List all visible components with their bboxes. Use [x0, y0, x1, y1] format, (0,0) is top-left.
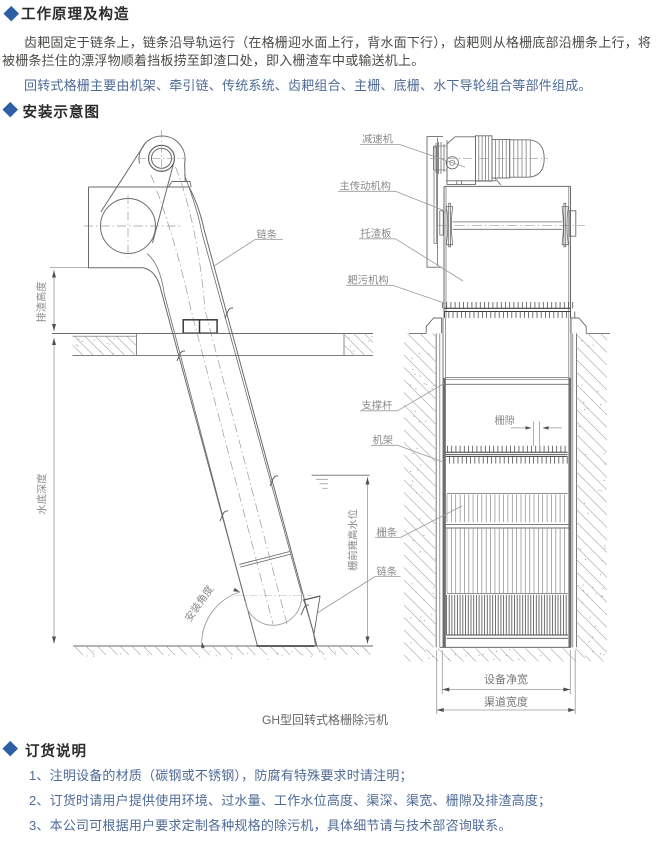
- svg-text:支撑杆: 支撑杆: [362, 399, 393, 412]
- svg-text:渠道宽度: 渠道宽度: [484, 695, 528, 709]
- svg-text:安装角度: 安装角度: [182, 583, 216, 624]
- svg-text:设备净宽: 设备净宽: [484, 672, 528, 686]
- svg-text:链条: 链条: [377, 565, 398, 578]
- svg-text:主传动机构: 主传动机构: [340, 180, 391, 193]
- svg-text:水底深度: 水底深度: [36, 473, 49, 514]
- svg-text:耙污机构: 耙污机构: [348, 274, 389, 287]
- svg-text:栅前雍高水位: 栅前雍高水位: [347, 509, 360, 571]
- svg-text:减速机: 减速机: [362, 133, 394, 146]
- svg-text:机架: 机架: [373, 434, 394, 447]
- svg-text:链条: 链条: [257, 228, 278, 241]
- svg-text:排渣高度: 排渣高度: [35, 281, 48, 322]
- svg-text:栅条: 栅条: [377, 526, 398, 539]
- svg-text:栅隙: 栅隙: [495, 414, 516, 427]
- svg-text:托渣板: 托渣板: [361, 227, 392, 240]
